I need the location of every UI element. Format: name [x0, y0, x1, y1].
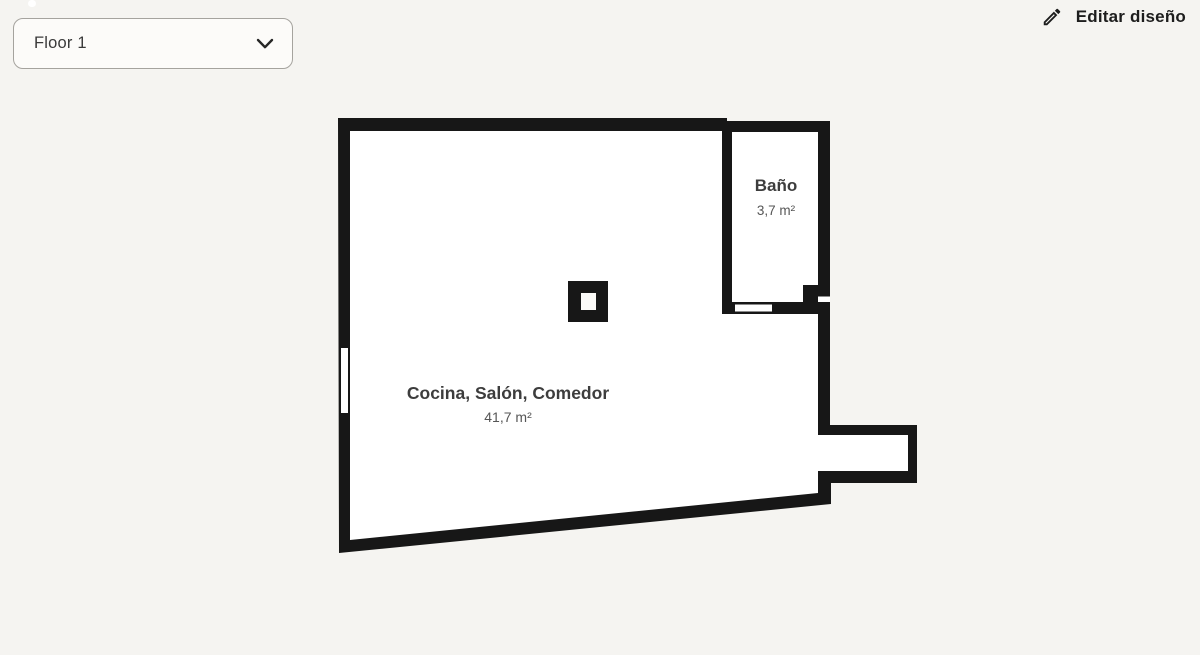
bathroom-floor[interactable]: [732, 132, 818, 302]
floor-plan-page: Floor 1 Editar diseño Cocina, Salón, Com…: [0, 0, 1200, 655]
pillar-core: [581, 293, 596, 310]
floor-plan-canvas[interactable]: [0, 0, 1200, 655]
left-wall-window: [341, 348, 348, 413]
bathroom-door: [735, 305, 772, 312]
right-wall-gap: [818, 297, 830, 303]
